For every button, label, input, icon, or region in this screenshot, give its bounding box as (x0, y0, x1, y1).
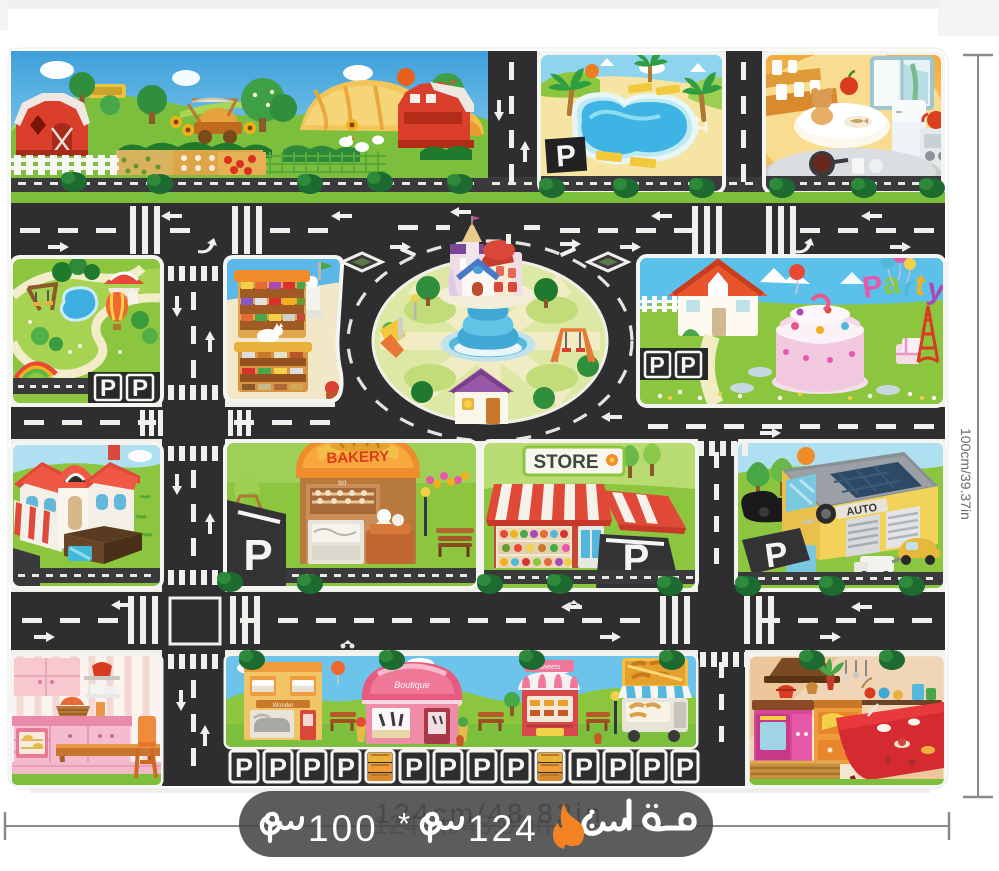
svg-text:so: so (338, 478, 347, 487)
svg-text:BAKERY: BAKERY (326, 448, 389, 467)
svg-text:P: P (676, 753, 694, 783)
svg-text:P: P (439, 753, 457, 783)
svg-text:P: P (235, 753, 253, 783)
svg-text:P: P (609, 753, 627, 783)
svg-text:P: P (555, 139, 577, 173)
svg-text:a: a (882, 267, 901, 301)
svg-text:P: P (337, 753, 355, 783)
svg-text:*: * (398, 806, 410, 841)
svg-text:STORE: STORE (533, 452, 598, 473)
svg-text:100: 100 (308, 808, 379, 849)
svg-text:P: P (473, 753, 491, 783)
svg-text:Wonder: Wonder (273, 703, 294, 709)
svg-text:100cm/39.37in: 100cm/39.37in (958, 428, 974, 520)
svg-text:P: P (507, 753, 525, 783)
svg-text:P: P (243, 531, 272, 580)
svg-text:P: P (269, 753, 287, 783)
svg-text:P: P (649, 352, 664, 378)
svg-text:P: P (643, 753, 661, 783)
svg-text:P: P (303, 753, 321, 783)
svg-text:124: 124 (468, 808, 539, 849)
svg-text:P: P (680, 352, 695, 378)
svg-text:P: P (575, 753, 593, 783)
svg-text:P: P (405, 753, 423, 783)
svg-text:P: P (132, 375, 148, 402)
svg-text:Boutique: Boutique (394, 680, 430, 690)
svg-text:P: P (100, 375, 116, 402)
